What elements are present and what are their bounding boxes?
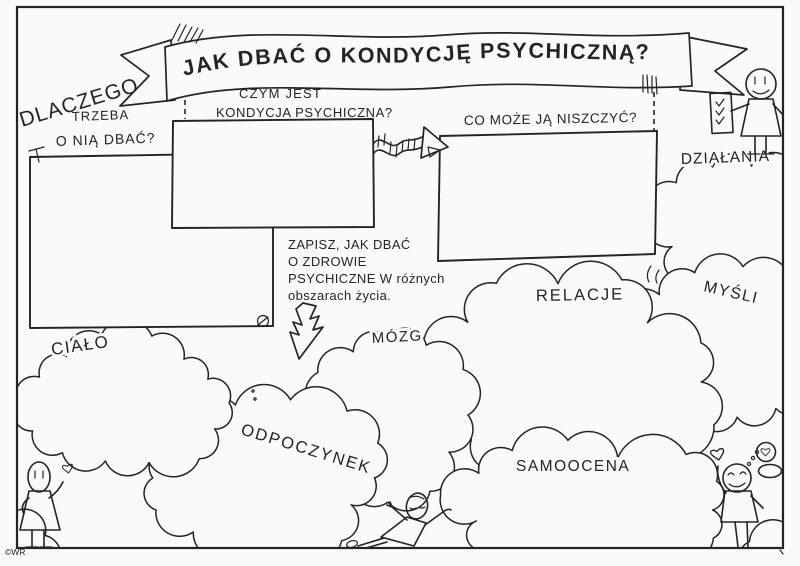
down-arrow-icon [290,303,323,359]
question-why-line2: O NIĄ DBAĆ? [56,130,156,149]
cloud-label-relacje: RELACJE [536,285,625,305]
question-why: DLACZEGO TRZEBA O NIĄ DBAĆ? [17,74,156,149]
thought-bubble-icon [747,443,781,478]
cloud-label-samoocena: SAMOOCENA [516,458,630,475]
cloud-cialo [14,319,233,477]
page-mark [780,550,783,554]
instruction-note: ZAPISZ, JAK DBAĆ O ZDROWIE PSYCHICZNE W … [288,237,445,303]
question-harm: CO MOŻE JĄ NISZCZYĆ? [464,110,638,128]
instruction-line3: PSYCHICZNE W różnych [288,271,445,286]
question-what: CZYM JEST KONDYCJA PSYCHICZNA? [216,86,393,120]
heart-icon [710,448,725,461]
credit-text: ©WR [5,547,25,557]
question-what-line2: KONDYCJA PSYCHICZNA? [216,105,393,120]
cloud-label-dzialania: DZIAŁANIA [681,148,771,168]
instruction-line4: obszarach życia. [288,288,391,303]
question-why-line1: TRZEBA [72,107,130,124]
banner-ribbon: JAK DBAĆ O KONDYCJĘ PSYCHICZNĄ? [120,24,747,106]
answer-box-harm [438,131,657,261]
cloud-label-mozg: MÓZG [371,327,423,347]
twisted-arrow-icon [374,127,448,158]
instruction-line2: O ZDROWIE [288,254,367,269]
instruction-line1: ZAPISZ, JAK DBAĆ [288,237,411,252]
answer-box-what [172,119,374,228]
worksheet-page: CIAŁO ODPOCZYNEK MÓZG RELACJE MYŚLI SAMO… [0,0,800,566]
checklist-card-icon [710,92,733,133]
curl-decoration-icon [647,266,659,283]
